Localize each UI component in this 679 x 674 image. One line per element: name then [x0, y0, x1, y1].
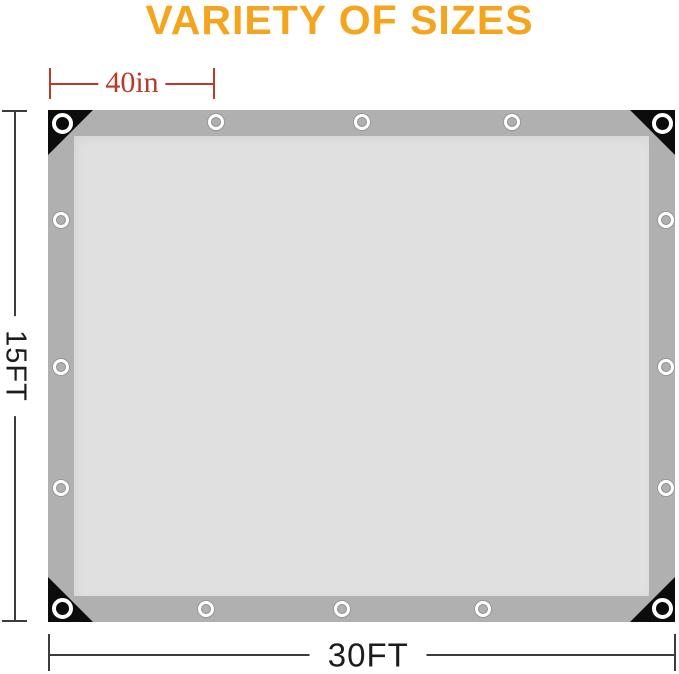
grommet-right-1: [658, 212, 674, 228]
page-title: VARIETY OF SIZES: [0, 0, 679, 43]
tarp: [48, 110, 675, 622]
grommet-top-3: [504, 114, 520, 130]
dimension-top-width: 40in: [49, 68, 215, 99]
grommet-left-1: [53, 212, 69, 228]
grommet-bottom-1: [198, 601, 214, 617]
dimension-tick-left: [48, 634, 50, 671]
dimension-tick-right: [213, 68, 215, 99]
grommet-corner-bottom-right: [652, 598, 673, 619]
grommet-corner-bottom-left: [52, 598, 73, 619]
dimension-bottom-width: 30FT: [48, 634, 676, 671]
grommet-left-3: [53, 480, 69, 496]
dimension-tick-right: [674, 634, 676, 671]
grommet-corner-top-left: [52, 113, 73, 134]
tarp-interior: [74, 136, 649, 596]
grommet-right-3: [658, 480, 674, 496]
dimension-top-width-label: 40in: [98, 66, 165, 101]
grommet-bottom-3: [475, 601, 491, 617]
grommet-left-2: [53, 359, 69, 375]
dimension-height-label: 15FT: [0, 316, 31, 416]
grommet-top-2: [354, 114, 370, 130]
dimension-bottom-width-label: 30FT: [310, 639, 427, 672]
grommet-right-2: [658, 359, 674, 375]
grommet-corner-top-right: [652, 113, 673, 134]
grommet-top-1: [208, 114, 224, 130]
dimension-height: 15FT: [2, 110, 27, 622]
grommet-bottom-2: [334, 601, 350, 617]
